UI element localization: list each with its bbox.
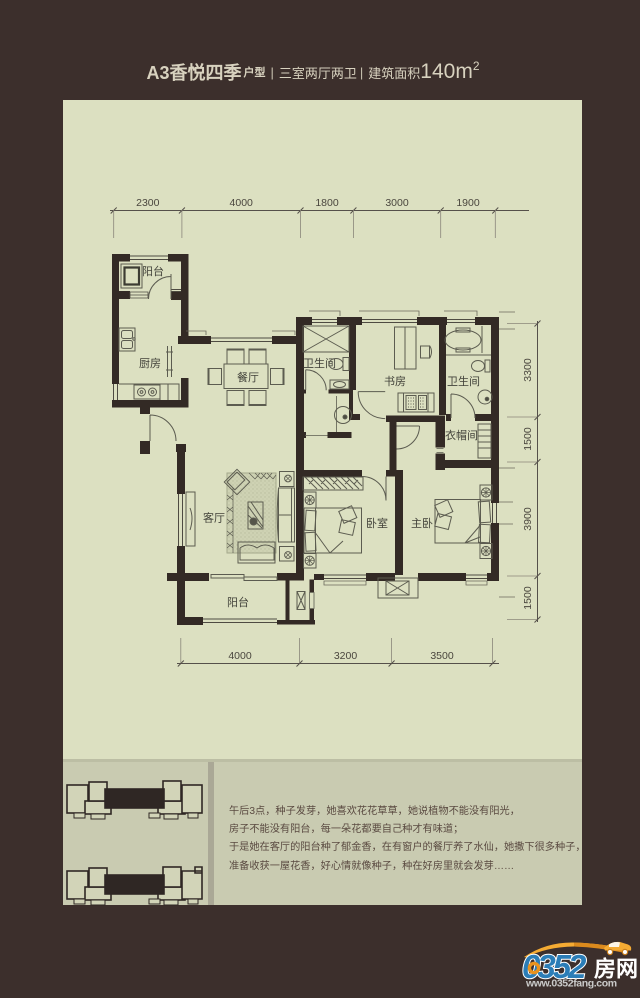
svg-text:阳台: 阳台 [227,595,249,609]
svg-text:厨房: 厨房 [139,357,161,370]
svg-text:3200: 3200 [334,650,358,662]
svg-text:3900: 3900 [522,507,534,531]
svg-text:餐厅: 餐厅 [237,370,259,384]
svg-text:4000: 4000 [230,197,254,209]
svg-text:1800: 1800 [315,197,339,209]
svg-text:1500: 1500 [522,427,534,451]
svg-text:客厅: 客厅 [203,511,225,525]
svg-text:www.0352fang.com: www.0352fang.com [525,978,617,990]
svg-text:1900: 1900 [456,197,480,209]
svg-text:2300: 2300 [136,197,160,209]
svg-text:3500: 3500 [430,650,454,662]
svg-text:卫生间: 卫生间 [447,374,480,388]
svg-text:衣帽间: 衣帽间 [445,428,478,442]
svg-text:书房: 书房 [384,375,406,388]
svg-text:4000: 4000 [228,650,252,662]
svg-text:3300: 3300 [522,358,534,382]
svg-text:卧室: 卧室 [366,516,388,530]
svg-text:阳台: 阳台 [142,264,164,278]
svg-text:1500: 1500 [522,586,534,610]
svg-text:3000: 3000 [385,197,409,209]
svg-text:主卧: 主卧 [411,517,433,530]
